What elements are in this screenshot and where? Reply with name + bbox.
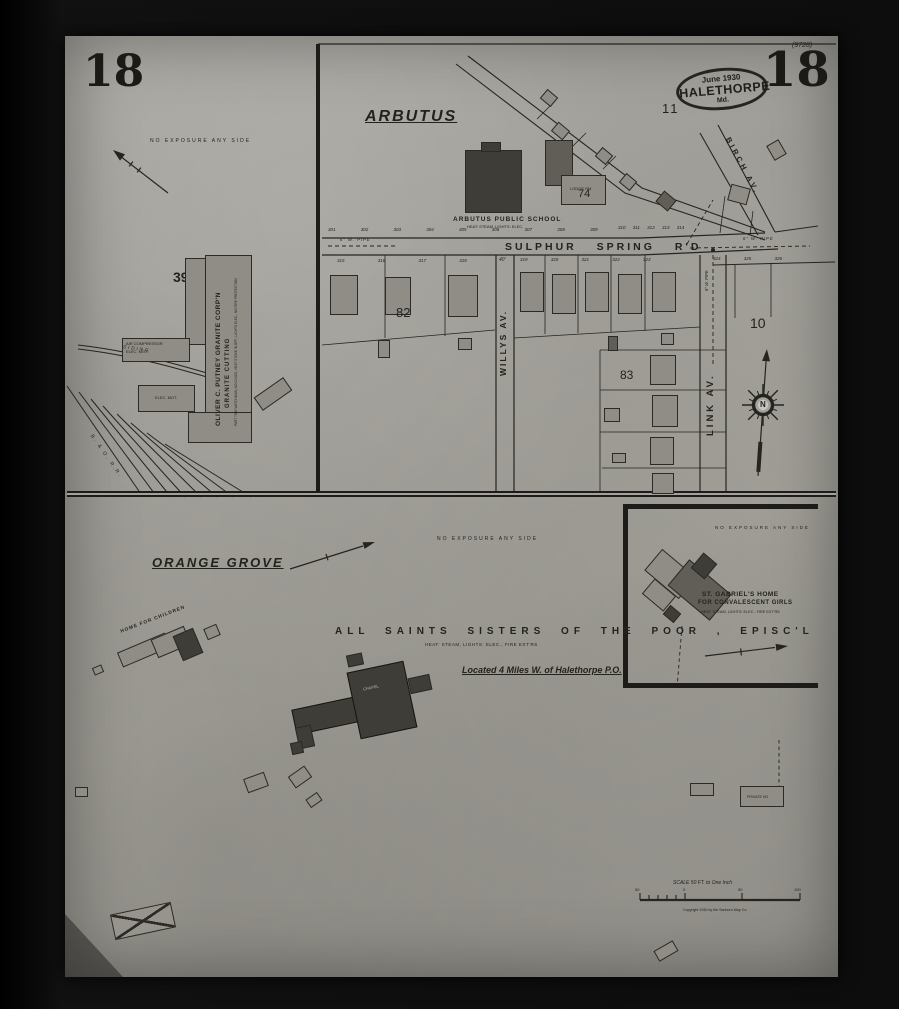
- dwelling: [652, 473, 674, 494]
- dwelling: [520, 272, 544, 312]
- caption-all-saints: ALL SAINTS SISTERS OF THE POOR , EPISC'L: [335, 626, 814, 638]
- school-building: [465, 150, 522, 213]
- block-number-74: 74: [578, 188, 590, 201]
- block-number-11: 11: [662, 102, 680, 117]
- dwelling: [650, 437, 674, 465]
- caption-note: HEAT: STEAM, LIGHTS: ELEC., FIRE EXT'RS: [425, 642, 538, 647]
- street-label-sulphur-spring: SULPHUR SPRING R'D: [505, 241, 702, 253]
- scale-number-mid: 50: [738, 888, 742, 893]
- factory-name-line1: OLIVER C. PUTNEY GRANITE CORP'N: [215, 268, 222, 426]
- lot-numbers-north-east: 310 311 312 313 314: [618, 225, 684, 230]
- dwelling: [585, 272, 609, 312]
- dwelling: [552, 274, 576, 314]
- compass-rose-icon: N: [760, 400, 766, 409]
- page-number-left: 18: [83, 46, 144, 97]
- st-gabriels-name-line1: ST. GABRIEL'S HOME: [702, 591, 779, 598]
- dwelling: [652, 272, 676, 312]
- outbuilding: [608, 336, 618, 351]
- elec-motor-label: ELEC. MOT.: [155, 396, 177, 401]
- scanned-map-canvas: 18 18 (9728) June 1930 HALETHORPE Md. NO…: [0, 0, 899, 1009]
- panel-divider-horizontal: [67, 491, 836, 497]
- private-house-label: PRIVATE HO.: [747, 795, 769, 799]
- pipe-note-link: 6" W. PIPE: [705, 270, 710, 291]
- lot-numbers-south-west: 315 316 317 318: [337, 258, 467, 263]
- copyright-note: Copyright 1930 by the Sanborn Map Co.: [683, 908, 747, 912]
- outbuilding: [690, 783, 714, 796]
- pipe-note-west: 6" W. PIPE: [340, 238, 371, 243]
- factory-motor-annex: ELEC. MOT.: [138, 385, 195, 412]
- scale-number-right: 100: [794, 888, 801, 893]
- block-number-10: 10: [750, 315, 766, 331]
- scale-number-zero: 0: [683, 888, 685, 893]
- outbuilding: [378, 340, 390, 358]
- scale-number-left: 50: [635, 888, 639, 893]
- title-arbutus: ARBUTUS: [365, 108, 457, 126]
- lot-numbers-south-mid: 319 320 321 322 323: [520, 257, 651, 262]
- street-width-note: 40': [499, 258, 506, 264]
- convent-building-part: [290, 741, 304, 755]
- exposure-note-orange-grove: NO EXPOSURE ANY SIDE: [437, 537, 538, 543]
- title-orange-grove: ORANGE GROVE: [152, 556, 284, 571]
- exposure-note-granite: NO EXPOSURE ANY SIDE: [150, 139, 251, 145]
- location-note: Located 4 Miles W. of Halethorpe P.O.: [462, 665, 622, 675]
- inset-border-top: [623, 504, 818, 509]
- outbuilding: [661, 333, 674, 345]
- private-house-building: PRIVATE HO.: [740, 786, 784, 807]
- exposure-note-inset: NO EXPOSURE ANY SIDE: [715, 525, 810, 530]
- inset-border-left: [623, 504, 628, 688]
- dwelling: [618, 274, 642, 314]
- block-number-83: 83: [620, 369, 633, 383]
- street-label-willys: WILLYS AV.: [499, 286, 509, 376]
- corner-note: (9728): [792, 42, 812, 50]
- lot-numbers-south-east: 324 325 326: [713, 256, 782, 261]
- factory-wing: [185, 258, 206, 345]
- dwelling: [650, 355, 676, 385]
- lot-numbers-north-west: 301 302 303 304 305 306 307 308 309: [328, 227, 598, 232]
- outbuilding: [75, 787, 88, 797]
- outbuilding: [458, 338, 472, 350]
- scale-label: SCALE 50 FT. to One Inch: [673, 881, 732, 887]
- scan-corner-shadow: [65, 914, 123, 977]
- factory-name-line2: GRANITE CUTTING: [225, 288, 232, 408]
- factory-note: PART TIME WATCHMAN, NO CLOCK, HEAT STOVE…: [235, 276, 239, 426]
- school-label: ARBUTUS PUBLIC SCHOOL: [453, 216, 561, 223]
- inset-border-bottom: [623, 683, 818, 688]
- block-number-82: 82: [396, 306, 410, 321]
- dwelling: [652, 395, 678, 427]
- st-gabriels-name-line2: FOR CONVALESCENT GIRLS: [698, 600, 793, 607]
- page-number-right: 18: [763, 42, 830, 98]
- school-tower: [481, 142, 501, 152]
- outbuilding: [604, 408, 620, 422]
- dwelling: [330, 275, 358, 315]
- dwelling: [448, 275, 478, 317]
- map-sheet: 18 18 (9728) June 1930 HALETHORPE Md. NO…: [65, 36, 838, 977]
- outbuilding: [612, 453, 626, 463]
- street-label-link: LINK AV.: [706, 346, 717, 436]
- st-gabriels-note: HEAT: STEAM, LIGHTS: ELEC., FIRE EXT'RS: [701, 610, 780, 614]
- pipe-note-east: 6" W. PIPE: [743, 237, 774, 242]
- panel-divider-vertical: [316, 44, 320, 496]
